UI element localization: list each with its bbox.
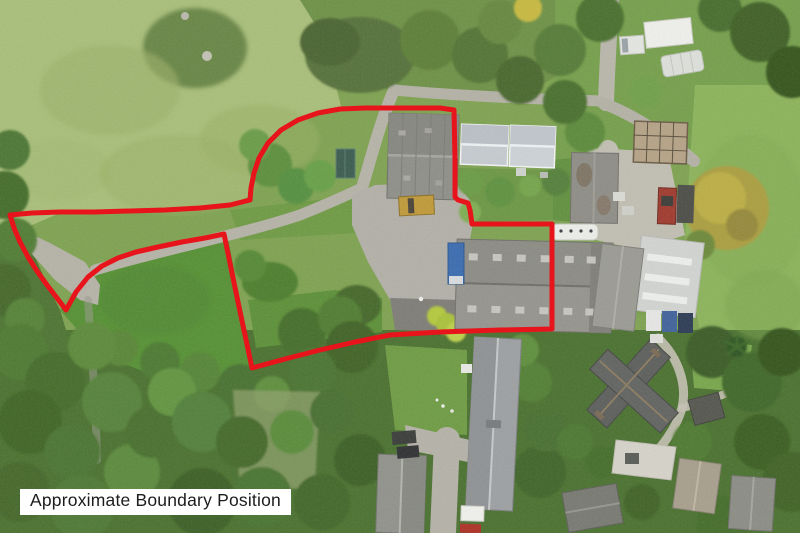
aerial-scene <box>0 0 800 533</box>
property-aerial-view: Approximate Boundary Position <box>0 0 800 533</box>
boundary-label-text: Approximate Boundary Position <box>30 490 281 510</box>
photo-grain <box>0 0 800 533</box>
boundary-label: Approximate Boundary Position <box>20 489 291 515</box>
